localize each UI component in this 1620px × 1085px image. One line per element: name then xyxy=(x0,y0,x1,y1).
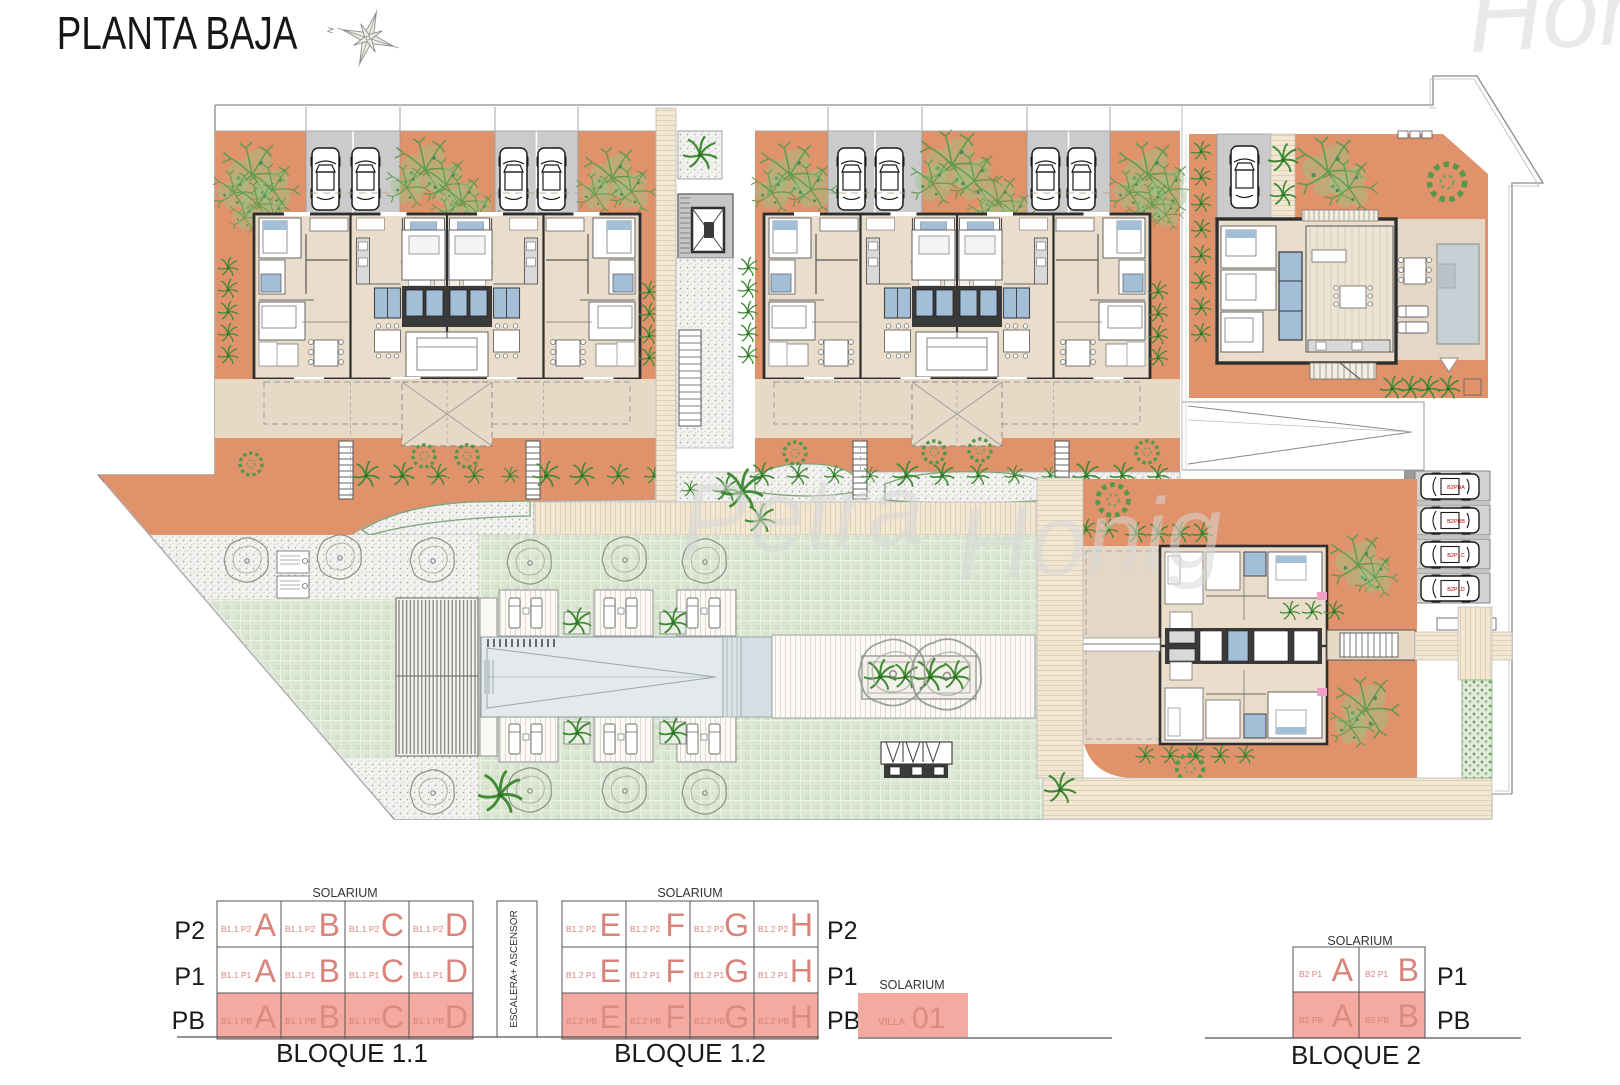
svg-text:A: A xyxy=(255,999,277,1035)
svg-text:B1.1 P1: B1.1 P1 xyxy=(413,970,444,980)
svg-text:P2: P2 xyxy=(827,917,858,945)
svg-text:PB: PB xyxy=(827,1007,860,1035)
svg-text:B2 PB: B2 PB xyxy=(1365,1015,1389,1025)
svg-text:C: C xyxy=(381,999,404,1035)
svg-text:B1.1 P1: B1.1 P1 xyxy=(285,970,316,980)
svg-text:B2 P1: B2 P1 xyxy=(1365,969,1388,979)
svg-text:B1.1 P1: B1.1 P1 xyxy=(221,970,252,980)
svg-text:D: D xyxy=(445,999,468,1035)
svg-text:D: D xyxy=(445,953,468,989)
svg-text:C: C xyxy=(381,953,404,989)
svg-text:B1.2 P1: B1.2 P1 xyxy=(694,970,725,980)
svg-text:G: G xyxy=(724,953,749,989)
svg-text:E: E xyxy=(600,953,621,989)
svg-text:B2 P1: B2 P1 xyxy=(1299,969,1322,979)
svg-text:B1.2 PB: B1.2 PB xyxy=(566,1016,598,1026)
svg-text:B1.2 P1: B1.2 P1 xyxy=(758,970,789,980)
svg-text:B1.2 P1: B1.2 P1 xyxy=(566,970,597,980)
svg-text:F: F xyxy=(665,907,685,943)
svg-text:BLOQUE 2: BLOQUE 2 xyxy=(1291,1040,1421,1070)
svg-text:B: B xyxy=(1398,952,1419,988)
svg-text:SOLARIUM: SOLARIUM xyxy=(1327,934,1392,948)
svg-text:VILLA: VILLA xyxy=(878,1017,906,1028)
svg-text:B2PBB: B2PBB xyxy=(1447,519,1465,525)
svg-text:B1.2 P2: B1.2 P2 xyxy=(694,924,725,934)
svg-text:BLOQUE 1.1: BLOQUE 1.1 xyxy=(276,1038,428,1068)
svg-text:B: B xyxy=(319,907,340,943)
svg-text:G: G xyxy=(724,999,749,1035)
svg-text:H: H xyxy=(790,999,813,1035)
svg-text:B: B xyxy=(1398,998,1419,1034)
svg-text:F: F xyxy=(665,953,685,989)
svg-text:B1.2 P2: B1.2 P2 xyxy=(566,924,597,934)
svg-text:P1: P1 xyxy=(1437,963,1468,991)
svg-text:Honig: Honig xyxy=(1465,0,1620,74)
svg-text:A: A xyxy=(1332,998,1354,1034)
svg-text:F: F xyxy=(665,999,685,1035)
svg-text:E: E xyxy=(600,999,621,1035)
svg-text:G: G xyxy=(724,907,749,943)
svg-text:B1.1 P2: B1.1 P2 xyxy=(349,924,380,934)
svg-text:B1.1 P2: B1.1 P2 xyxy=(221,924,252,934)
svg-text:SOLARIUM: SOLARIUM xyxy=(879,978,944,992)
svg-text:B1.1 PB: B1.1 PB xyxy=(413,1016,445,1026)
svg-text:PLANTA BAJA: PLANTA BAJA xyxy=(57,7,298,59)
svg-text:B1.2 PB: B1.2 PB xyxy=(694,1016,726,1026)
svg-text:B1.1 PB: B1.1 PB xyxy=(221,1016,253,1026)
svg-text:B1.1 PB: B1.1 PB xyxy=(349,1016,381,1026)
svg-text:B: B xyxy=(319,999,340,1035)
svg-text:A: A xyxy=(1332,952,1354,988)
svg-text:B2P1C: B2P1C xyxy=(1447,553,1464,559)
svg-text:P1: P1 xyxy=(827,963,858,991)
svg-text:H: H xyxy=(790,953,813,989)
svg-text:B1.1 P1: B1.1 P1 xyxy=(349,970,380,980)
svg-text:C: C xyxy=(381,907,404,943)
svg-text:PB: PB xyxy=(172,1007,205,1035)
svg-text:E: E xyxy=(600,907,621,943)
svg-text:A: A xyxy=(255,953,277,989)
svg-text:A: A xyxy=(255,907,277,943)
svg-text:01: 01 xyxy=(912,1002,945,1035)
svg-text:B2PBA: B2PBA xyxy=(1447,485,1465,491)
svg-text:PB: PB xyxy=(1437,1007,1470,1035)
svg-text:H: H xyxy=(790,907,813,943)
svg-text:P1: P1 xyxy=(174,963,205,991)
svg-text:B1.1 P2: B1.1 P2 xyxy=(413,924,444,934)
svg-text:B1.2 P2: B1.2 P2 xyxy=(758,924,789,934)
svg-text:B1.2 PB: B1.2 PB xyxy=(630,1016,662,1026)
svg-text:B2P1D: B2P1D xyxy=(1447,587,1464,593)
svg-text:B1.2 P1: B1.2 P1 xyxy=(630,970,661,980)
svg-text:B: B xyxy=(319,953,340,989)
svg-text:SOLARIUM: SOLARIUM xyxy=(312,886,377,900)
svg-text:SOLARIUM: SOLARIUM xyxy=(657,886,722,900)
svg-text:Petra: Petra xyxy=(677,451,926,578)
svg-text:B1.1 PB: B1.1 PB xyxy=(285,1016,317,1026)
svg-text:D: D xyxy=(445,907,468,943)
svg-text:B1.2 PB: B1.2 PB xyxy=(758,1016,790,1026)
svg-text:BLOQUE 1.2: BLOQUE 1.2 xyxy=(614,1038,766,1068)
svg-text:ESCALERA+ ASCENSOR: ESCALERA+ ASCENSOR xyxy=(509,910,520,1028)
svg-text:P2: P2 xyxy=(174,917,205,945)
svg-text:B1.2 P2: B1.2 P2 xyxy=(630,924,661,934)
svg-text:B2 PB: B2 PB xyxy=(1299,1015,1323,1025)
svg-text:B1.1 P2: B1.1 P2 xyxy=(285,924,316,934)
svg-text:Honig: Honig xyxy=(953,474,1225,602)
